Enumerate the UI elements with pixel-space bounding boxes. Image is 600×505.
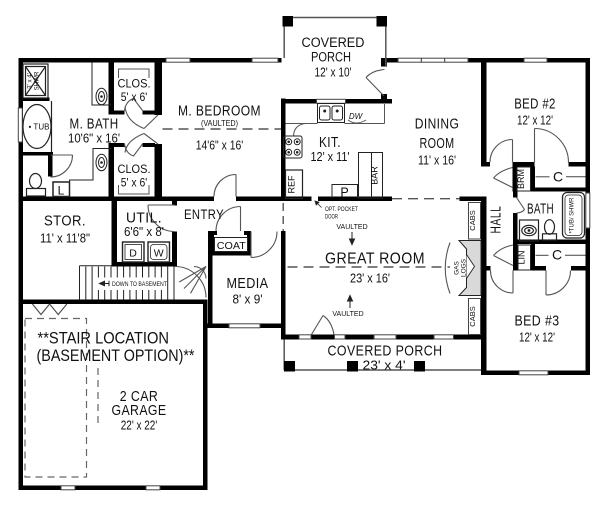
svg-text:VAULTED: VAULTED (332, 311, 363, 318)
svg-text:6'6" x 8': 6'6" x 8' (124, 225, 164, 239)
svg-text:COVERED PORCH: COVERED PORCH (328, 343, 443, 360)
svg-text:SHWR: SHWR (34, 71, 41, 90)
svg-text:GARAGE: GARAGE (112, 402, 167, 419)
svg-text:GAS: GAS (454, 260, 461, 274)
svg-text:BAR: BAR (370, 166, 380, 185)
svg-text:CLOS.: CLOS. (118, 162, 151, 176)
svg-text:3' x 4': 3' x 4' (27, 73, 34, 89)
svg-text:DINING: DINING (415, 115, 460, 132)
svg-text:14'6" x 16': 14'6" x 16' (196, 139, 244, 153)
svg-text:P: P (340, 186, 348, 200)
svg-text:C: C (553, 169, 563, 185)
svg-text:BED #2: BED #2 (514, 95, 556, 112)
svg-text:ROOM: ROOM (420, 135, 455, 152)
svg-text:12' x 11': 12' x 11' (311, 150, 350, 164)
svg-text:22' x 22': 22' x 22' (121, 419, 158, 433)
svg-text:CABS: CABS (468, 306, 477, 326)
svg-text:M. BEDROOM: M. BEDROOM (178, 102, 261, 119)
svg-text:LIN: LIN (517, 250, 527, 264)
svg-text:DOOR: DOOR (325, 214, 338, 221)
svg-text:(BASEMENT OPTION)**: (BASEMENT OPTION)** (37, 346, 195, 365)
svg-text:MEDIA: MEDIA (227, 275, 269, 292)
svg-text:BED #3: BED #3 (515, 312, 560, 329)
svg-text:5' x 6': 5' x 6' (121, 90, 148, 104)
svg-text:**STAIR LOCATION: **STAIR LOCATION (38, 329, 170, 348)
svg-text:12' x 12': 12' x 12' (519, 331, 555, 345)
svg-text:W: W (154, 248, 164, 260)
svg-text:5' x 6': 5' x 6' (121, 176, 148, 190)
svg-text:11' x 16': 11' x 16' (418, 154, 456, 168)
svg-text:8' x 9': 8' x 9' (233, 293, 263, 307)
svg-text:LOGS: LOGS (461, 258, 468, 277)
svg-text:REF: REF (287, 175, 297, 194)
svg-text:*TUB/ SHWR: *TUB/ SHWR (570, 197, 576, 234)
svg-text:12' x 10': 12' x 10' (315, 66, 352, 80)
svg-text:BATH: BATH (527, 200, 554, 217)
svg-text:D: D (129, 248, 137, 260)
svg-text:KIT.: KIT. (319, 134, 341, 151)
svg-text:• TUB: • TUB (29, 123, 50, 132)
svg-text:STOR.: STOR. (44, 212, 86, 229)
svg-text:COVERED: COVERED (302, 35, 365, 50)
svg-text:UTIL.: UTIL. (126, 209, 162, 226)
svg-text:OPT. POCKET: OPT. POCKET (325, 206, 358, 213)
svg-text:DOWN TO BASEMENT: DOWN TO BASEMENT (112, 281, 167, 288)
svg-text:12' x 12': 12' x 12' (517, 114, 553, 128)
svg-text:M. BATH: M. BATH (70, 116, 119, 133)
svg-text:CABS: CABS (468, 210, 477, 230)
svg-text:CLOS.: CLOS. (118, 76, 151, 90)
svg-text:(VAULTED): (VAULTED) (201, 119, 238, 128)
svg-text:GREAT ROOM: GREAT ROOM (325, 250, 425, 267)
svg-text:10'6" x 16': 10'6" x 16' (68, 132, 120, 146)
svg-text:C: C (552, 247, 562, 263)
svg-text:11' x 11'8": 11' x 11'8" (40, 232, 90, 246)
svg-text:L: L (58, 184, 65, 198)
svg-text:ENTRY: ENTRY (184, 207, 224, 222)
svg-text:DW: DW (349, 112, 364, 121)
svg-text:BRM: BRM (516, 169, 526, 189)
svg-text:23' x 4': 23' x 4' (363, 359, 406, 373)
svg-text:23' x 16': 23' x 16' (350, 272, 390, 286)
svg-text:VAULTED: VAULTED (336, 224, 367, 231)
svg-text:PORCH: PORCH (311, 50, 351, 65)
svg-text:COAT: COAT (217, 241, 246, 252)
svg-text:HALL: HALL (488, 206, 505, 234)
